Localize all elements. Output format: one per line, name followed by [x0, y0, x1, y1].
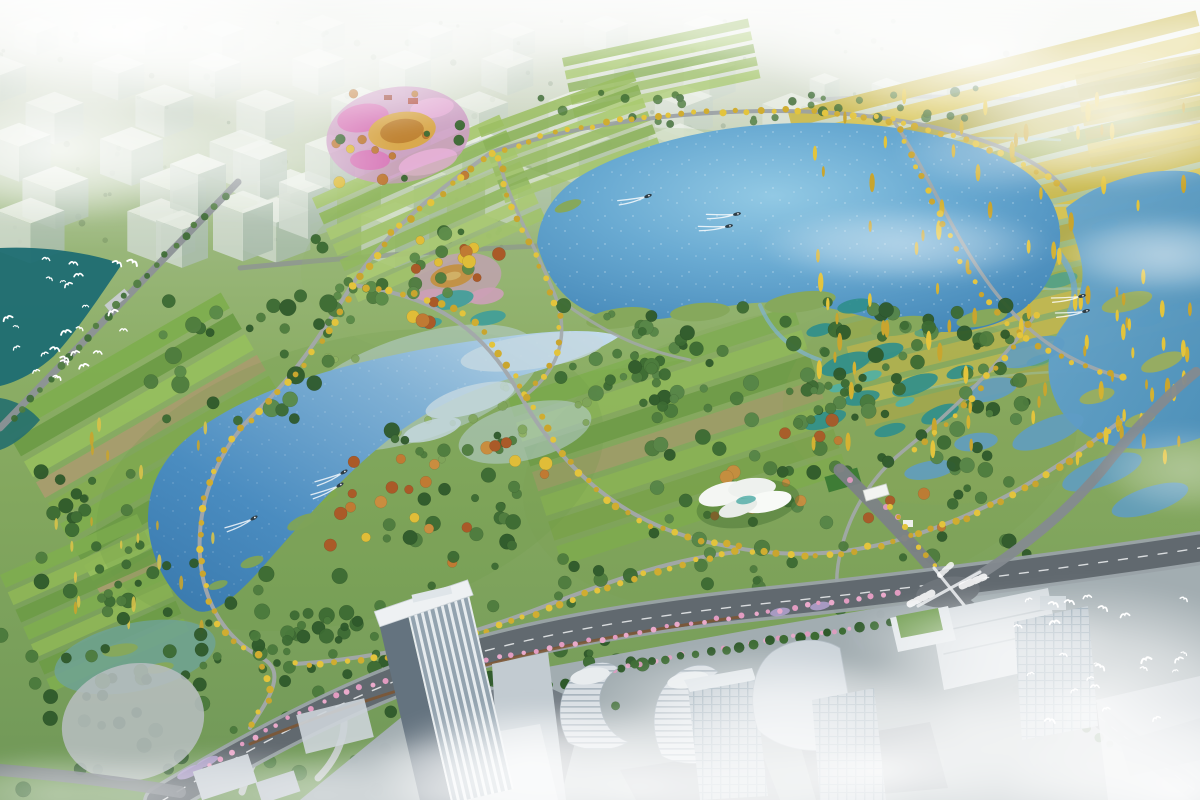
tree: [267, 644, 278, 655]
tree: [396, 454, 406, 464]
tree: [695, 429, 710, 444]
avenue-tree: [604, 584, 611, 591]
avenue-tree: [174, 243, 180, 249]
avenue-tree: [204, 583, 209, 588]
avenue-tree: [979, 292, 984, 297]
tree: [340, 623, 348, 631]
tree: [101, 644, 110, 653]
avenue-tree: [1001, 355, 1008, 362]
avenue-tree: [19, 406, 26, 413]
poplar-tree: [926, 331, 931, 350]
avenue-tree: [1083, 363, 1088, 368]
tree: [273, 659, 280, 666]
avenue-tree: [693, 557, 698, 562]
poplar-tree: [845, 433, 850, 451]
tree: [462, 255, 475, 268]
avenue-tree: [838, 551, 844, 557]
tree: [311, 234, 321, 244]
avenue-tree: [293, 371, 299, 377]
tree: [787, 557, 798, 568]
avenue-tree: [559, 642, 564, 647]
avenue-tree: [811, 108, 817, 114]
avenue-tree: [307, 663, 312, 668]
tree: [963, 484, 971, 492]
avenue-tree: [641, 115, 646, 120]
avenue-tree: [719, 109, 726, 116]
tree: [507, 540, 517, 550]
avenue-tree: [543, 275, 549, 281]
avenue-tree: [864, 543, 871, 550]
avenue-tree: [216, 457, 222, 463]
poplar-tree: [1188, 302, 1192, 316]
tree: [125, 546, 133, 554]
tree: [85, 650, 97, 662]
avenue-tree: [496, 622, 503, 629]
avenue-tree: [1017, 332, 1023, 338]
poplar-tree: [812, 437, 816, 451]
avenue-tree: [1032, 481, 1039, 488]
tree: [557, 553, 568, 564]
avenue-tree: [765, 635, 775, 645]
tree: [332, 568, 348, 584]
tree: [91, 541, 101, 551]
avenue-tree: [617, 580, 623, 586]
avenue-tree: [702, 620, 707, 625]
tree: [666, 120, 674, 128]
tree: [953, 490, 963, 500]
tree: [174, 366, 186, 378]
avenue-tree: [554, 349, 561, 356]
tree: [420, 476, 432, 488]
avenue-tree: [1066, 458, 1074, 466]
tree: [638, 327, 646, 335]
avenue-tree: [912, 447, 918, 453]
avenue-tree: [467, 165, 474, 172]
avenue-tree: [376, 286, 382, 292]
avenue-tree: [198, 558, 204, 564]
tree: [348, 489, 357, 498]
tree: [569, 561, 580, 572]
tree: [448, 551, 460, 563]
avenue-tree: [58, 362, 66, 370]
avenue-tree: [827, 551, 834, 558]
avenue-tree: [154, 262, 160, 268]
avenue-tree: [523, 394, 530, 401]
tree: [653, 437, 668, 452]
avenue-tree: [206, 598, 212, 604]
tree: [538, 95, 545, 102]
tree: [492, 247, 505, 260]
tree: [462, 444, 474, 456]
tree: [593, 565, 604, 576]
tree: [280, 350, 289, 359]
avenue-tree: [206, 479, 213, 486]
avenue-tree: [978, 385, 984, 391]
tree: [71, 511, 82, 522]
avenue-tree: [301, 363, 306, 368]
avenue-tree: [253, 735, 259, 741]
tree: [280, 323, 290, 333]
avenue-tree: [719, 551, 725, 557]
tree: [194, 628, 207, 641]
avenue-tree: [214, 621, 220, 627]
avenue-tree: [570, 597, 576, 603]
avenue-tree: [93, 323, 99, 329]
avenue-tree: [161, 251, 167, 257]
tree: [324, 617, 332, 625]
avenue-tree: [743, 109, 749, 115]
avenue-tree: [489, 150, 496, 157]
tree: [807, 415, 816, 424]
avenue-tree: [199, 520, 205, 526]
avenue-tree: [336, 309, 343, 316]
tree: [712, 442, 726, 456]
avenue-tree: [637, 630, 642, 635]
poplar-tree: [77, 596, 80, 608]
tree: [437, 444, 450, 457]
avenue-tree: [345, 658, 350, 663]
avenue-tree: [546, 605, 553, 612]
avenue-tree: [255, 709, 260, 714]
avenue-tree: [333, 692, 339, 698]
avenue-tree: [11, 415, 18, 422]
avenue-tree: [241, 645, 246, 650]
tree: [826, 414, 839, 427]
tree: [589, 352, 603, 366]
avenue-tree: [925, 187, 931, 193]
avenue-tree: [489, 342, 495, 348]
poplar-tree: [1043, 382, 1047, 396]
avenue-tree: [997, 498, 1004, 505]
tree: [126, 469, 136, 479]
avenue-tree: [191, 222, 198, 229]
avenue-tree: [823, 629, 831, 637]
avenue-tree: [711, 539, 718, 546]
tree: [334, 292, 342, 300]
poplar-tree: [1068, 212, 1073, 231]
tree: [429, 459, 439, 469]
avenue-tree: [541, 374, 547, 380]
avenue-tree: [508, 618, 514, 624]
tree: [918, 488, 930, 500]
tree: [899, 352, 908, 361]
poplar-tree: [106, 450, 109, 461]
avenue-tree: [248, 722, 254, 728]
tree: [558, 576, 571, 589]
poplar-tree: [833, 352, 836, 363]
avenue-tree: [559, 450, 566, 457]
tree: [438, 227, 452, 241]
tree: [322, 355, 335, 368]
avenue-tree: [550, 437, 556, 443]
tree: [882, 363, 890, 371]
tree: [975, 492, 987, 504]
avenue-tree: [212, 608, 217, 613]
poplar-tree: [1027, 304, 1031, 319]
avenue-tree: [385, 287, 392, 294]
poplar-tree: [90, 517, 93, 526]
tree: [254, 604, 270, 620]
tree: [189, 559, 198, 568]
tree: [501, 437, 512, 448]
avenue-tree: [714, 616, 719, 621]
poplar-tree: [1031, 410, 1035, 424]
avenue-tree: [788, 551, 795, 558]
tree: [361, 533, 370, 542]
tree: [428, 582, 436, 590]
tree: [893, 383, 906, 396]
avenue-tree: [249, 418, 255, 424]
avenue-tree: [502, 147, 508, 153]
tree: [205, 619, 212, 626]
poplar-tree: [937, 343, 942, 362]
avenue-tree: [750, 549, 756, 555]
avenue-tree: [579, 125, 584, 130]
tree: [418, 492, 431, 505]
tree: [61, 653, 72, 664]
avenue-tree: [961, 402, 967, 408]
tree: [401, 175, 408, 182]
tree: [833, 368, 846, 381]
avenue-tree: [629, 116, 635, 122]
avenue-tree: [371, 683, 376, 688]
tree: [705, 359, 713, 367]
tree: [370, 632, 379, 641]
tree: [650, 480, 664, 494]
avenue-tree: [671, 529, 678, 536]
avenue-tree: [556, 325, 561, 330]
avenue-tree: [237, 424, 244, 431]
tree: [25, 650, 38, 663]
tree: [258, 566, 274, 582]
avenue-tree: [411, 290, 418, 297]
tree: [135, 540, 144, 549]
poplar-tree: [211, 532, 214, 544]
poplar-tree: [1131, 347, 1134, 358]
avenue-tree: [481, 156, 487, 162]
tree: [43, 689, 58, 704]
tree: [162, 294, 175, 307]
poplar-tree: [136, 533, 139, 543]
tree: [575, 401, 582, 408]
avenue-tree: [556, 339, 562, 345]
tree: [121, 504, 133, 516]
avenue-tree: [952, 518, 959, 525]
avenue-tree: [684, 533, 691, 540]
tree: [424, 131, 430, 137]
tree: [772, 114, 779, 121]
avenue-tree: [450, 305, 458, 313]
avenue-tree: [495, 155, 502, 162]
tree: [508, 481, 520, 493]
tree: [588, 385, 603, 400]
tree: [861, 403, 876, 418]
avenue-tree: [499, 165, 506, 172]
poplar-tree: [1160, 300, 1165, 317]
avenue-tree: [526, 139, 531, 144]
tree: [65, 523, 79, 537]
tree: [458, 229, 465, 236]
avenue-tree: [1107, 370, 1114, 377]
poplar-tree: [849, 382, 854, 400]
tree: [206, 328, 215, 337]
poplar-tree: [1128, 318, 1132, 331]
tree: [290, 610, 300, 620]
avenue-tree: [851, 549, 857, 555]
poplar-tree: [131, 596, 135, 612]
tree: [335, 636, 342, 643]
avenue-tree: [356, 684, 362, 690]
avenue-tree: [581, 590, 588, 597]
avenue-tree: [816, 601, 820, 605]
tree: [951, 306, 964, 319]
tree: [225, 597, 238, 610]
avenue-tree: [400, 292, 406, 298]
tree: [646, 363, 658, 375]
tree: [351, 355, 359, 363]
avenue-tree: [255, 408, 263, 416]
poplar-tree: [868, 293, 872, 307]
avenue-tree: [648, 524, 653, 529]
tree: [701, 577, 714, 590]
tree: [102, 606, 113, 617]
avenue-tree: [427, 199, 434, 206]
tree: [313, 318, 325, 330]
avenue-tree: [265, 398, 272, 405]
poplar-tree: [837, 333, 842, 351]
tree: [603, 313, 610, 320]
avenue-tree: [624, 633, 629, 638]
tree: [114, 581, 122, 589]
tree: [411, 264, 421, 274]
tree: [628, 360, 642, 374]
avenue-tree: [26, 395, 34, 403]
avenue-tree: [890, 539, 895, 544]
avenue-tree: [1086, 440, 1093, 447]
tree: [95, 564, 104, 573]
tree: [665, 514, 674, 523]
aerial-masterplan-rendering: [0, 0, 1200, 800]
tree: [652, 412, 663, 423]
tree: [207, 397, 220, 410]
tree: [345, 502, 355, 512]
avenue-tree: [1116, 420, 1123, 427]
avenue-tree: [1011, 344, 1016, 349]
tree: [29, 677, 41, 689]
poplar-tree: [853, 361, 857, 374]
avenue-tree: [600, 637, 606, 643]
avenue-tree: [332, 319, 339, 326]
tree: [324, 539, 337, 552]
avenue-tree: [794, 108, 801, 115]
poplar-tree: [1145, 379, 1148, 389]
tree: [88, 477, 96, 485]
tree: [657, 401, 668, 412]
tree: [730, 392, 743, 405]
poplar-tree: [1083, 345, 1086, 356]
avenue-tree: [366, 263, 373, 270]
avenue-tree: [556, 601, 564, 609]
avenue-tree: [791, 634, 795, 638]
avenue-tree: [603, 119, 610, 126]
avenue-tree: [503, 362, 510, 369]
avenue-tree: [231, 638, 237, 644]
tree: [750, 118, 757, 125]
avenue-tree: [255, 651, 263, 659]
avenue-tree: [273, 723, 278, 728]
poplar-tree: [1162, 337, 1166, 351]
tree: [779, 427, 790, 438]
avenue-tree: [603, 496, 611, 504]
avenue-tree: [383, 678, 389, 684]
avenue-tree: [326, 327, 333, 334]
avenue-tree: [575, 469, 583, 477]
tree: [630, 352, 639, 361]
avenue-tree: [777, 608, 782, 613]
poplar-tree: [835, 313, 838, 325]
tree: [162, 414, 171, 423]
tree: [386, 481, 398, 493]
avenue-tree: [533, 381, 538, 386]
avenue-tree: [613, 635, 618, 640]
tree: [825, 403, 836, 414]
avenue-tree: [519, 227, 525, 233]
avenue-tree: [417, 206, 423, 212]
tree: [859, 374, 867, 382]
tree: [282, 635, 293, 646]
avenue-tree: [460, 310, 466, 316]
tree: [753, 577, 761, 585]
avenue-tree: [986, 299, 992, 305]
tree: [763, 461, 777, 475]
avenue-tree: [761, 548, 768, 555]
tree: [435, 272, 446, 283]
avenue-tree: [201, 495, 206, 500]
tree: [80, 495, 88, 503]
avenue-tree: [494, 350, 502, 358]
avenue-tree: [1024, 321, 1031, 328]
fog-cloud: [100, 100, 400, 220]
tree: [947, 498, 958, 509]
tree: [122, 560, 132, 570]
avenue-tree: [440, 191, 446, 197]
avenue-tree: [356, 273, 363, 280]
avenue-tree: [266, 698, 272, 704]
tree: [972, 442, 983, 453]
tree: [55, 474, 65, 484]
poplar-tree: [966, 415, 970, 429]
tree: [307, 375, 322, 390]
tree: [325, 319, 332, 326]
poplar-tree: [813, 146, 817, 161]
avenue-tree: [665, 624, 669, 628]
avenue-tree: [612, 503, 620, 511]
tree: [786, 336, 801, 351]
poplar-tree: [968, 401, 972, 414]
poplar-tree: [1099, 381, 1104, 400]
tree: [383, 518, 396, 531]
avenue-tree: [944, 422, 949, 427]
poplar-tree: [203, 421, 207, 434]
tree: [144, 374, 158, 388]
tree: [253, 585, 263, 595]
poplar-tree: [1122, 293, 1126, 306]
tree: [401, 436, 410, 445]
tree: [1000, 330, 1009, 339]
avenue-tree: [921, 438, 928, 445]
avenue-tree: [667, 566, 673, 572]
tree: [556, 298, 571, 313]
